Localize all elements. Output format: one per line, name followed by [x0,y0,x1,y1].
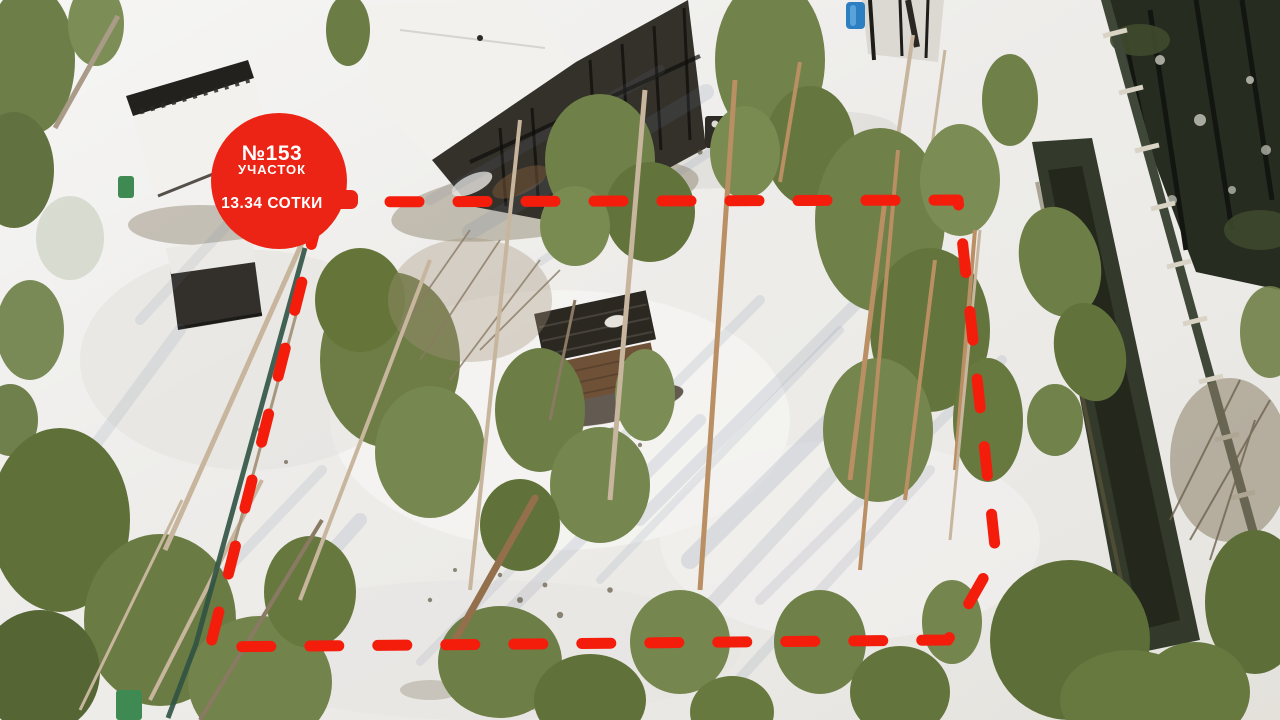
storage-shed [166,238,262,330]
plot-type-text: УЧАСТОК [238,162,306,177]
badge-circle [211,113,347,249]
aerial-photo: №153 УЧАСТОК 13.34 СОТКИ [0,0,1280,720]
green-barrel [118,176,134,198]
aerial-photo-canvas: №153 УЧАСТОК 13.34 СОТКИ [0,0,1280,720]
bird-on-roof [477,35,483,41]
plot-area-text: 13.34 СОТКИ [221,195,323,212]
green-gate [116,690,142,720]
